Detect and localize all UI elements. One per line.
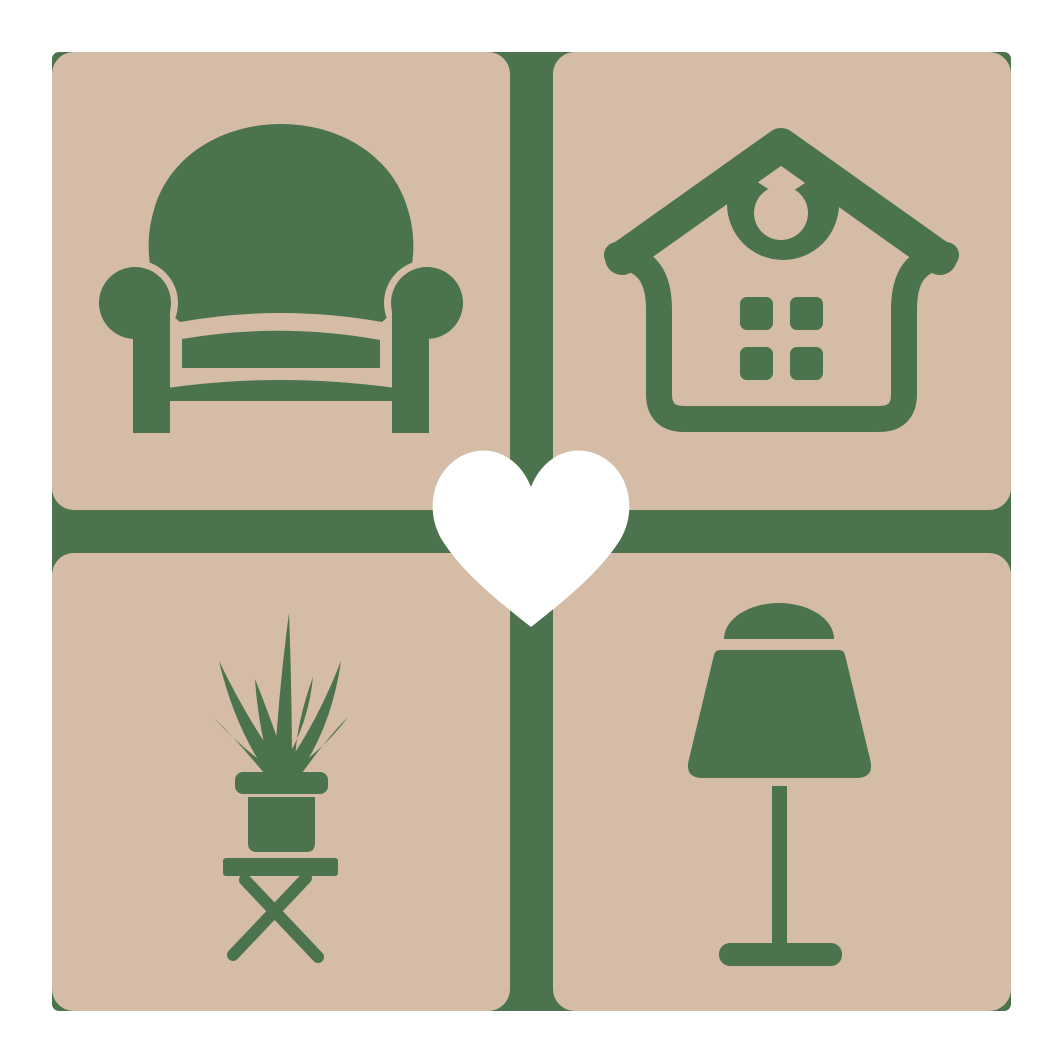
tile-top-right — [553, 52, 1011, 510]
heart-icon — [424, 446, 638, 627]
logo — [52, 52, 1011, 1011]
logo-canvas — [0, 0, 1063, 1063]
tile-top-left — [52, 52, 510, 510]
armchair-icon — [52, 52, 510, 510]
house-icon — [553, 52, 1011, 510]
